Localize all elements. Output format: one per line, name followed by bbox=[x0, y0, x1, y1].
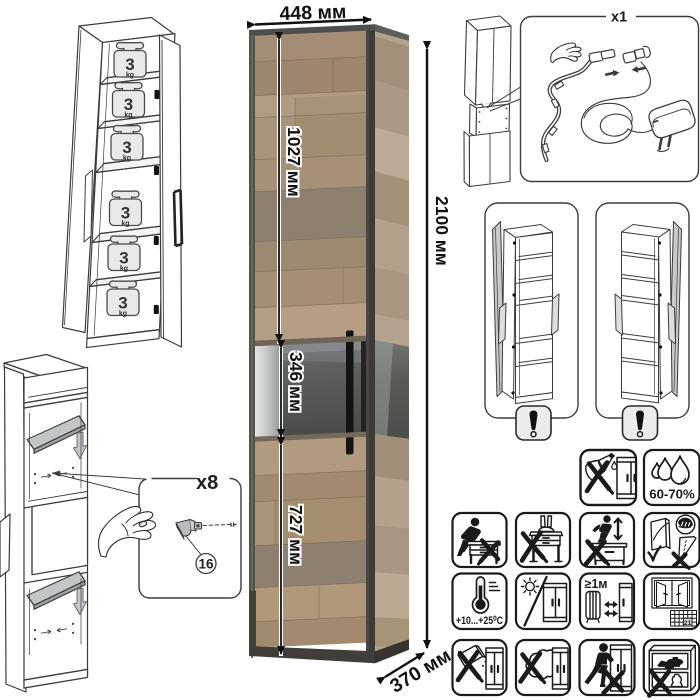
svg-text:346 мм: 346 мм bbox=[286, 352, 306, 412]
svg-text:≥1м: ≥1м bbox=[585, 577, 608, 591]
svg-text:21: 21 bbox=[684, 620, 692, 627]
svg-text:16: 16 bbox=[198, 557, 214, 572]
svg-text:727 мм: 727 мм bbox=[286, 505, 306, 565]
svg-text:kg: kg bbox=[126, 72, 134, 79]
svg-text:2100 мм: 2100 мм bbox=[432, 196, 452, 266]
svg-text:60-70%: 60-70% bbox=[649, 487, 695, 502]
svg-text:x1: x1 bbox=[611, 10, 627, 26]
svg-text:x8: x8 bbox=[196, 472, 218, 494]
svg-text:+10...+25⁰С: +10...+25⁰С bbox=[456, 615, 503, 627]
svg-text:1027 мм: 1027 мм bbox=[284, 127, 304, 197]
